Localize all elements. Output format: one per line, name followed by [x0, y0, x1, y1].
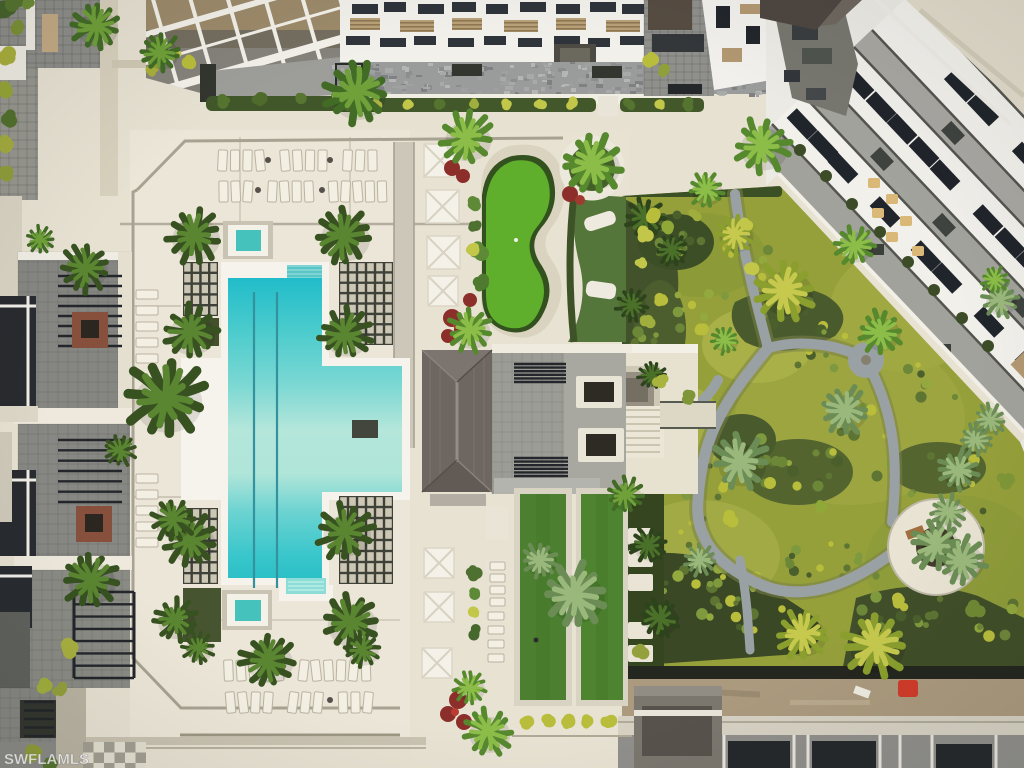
- svg-text:SWFLAMLS: SWFLAMLS: [4, 751, 89, 768]
